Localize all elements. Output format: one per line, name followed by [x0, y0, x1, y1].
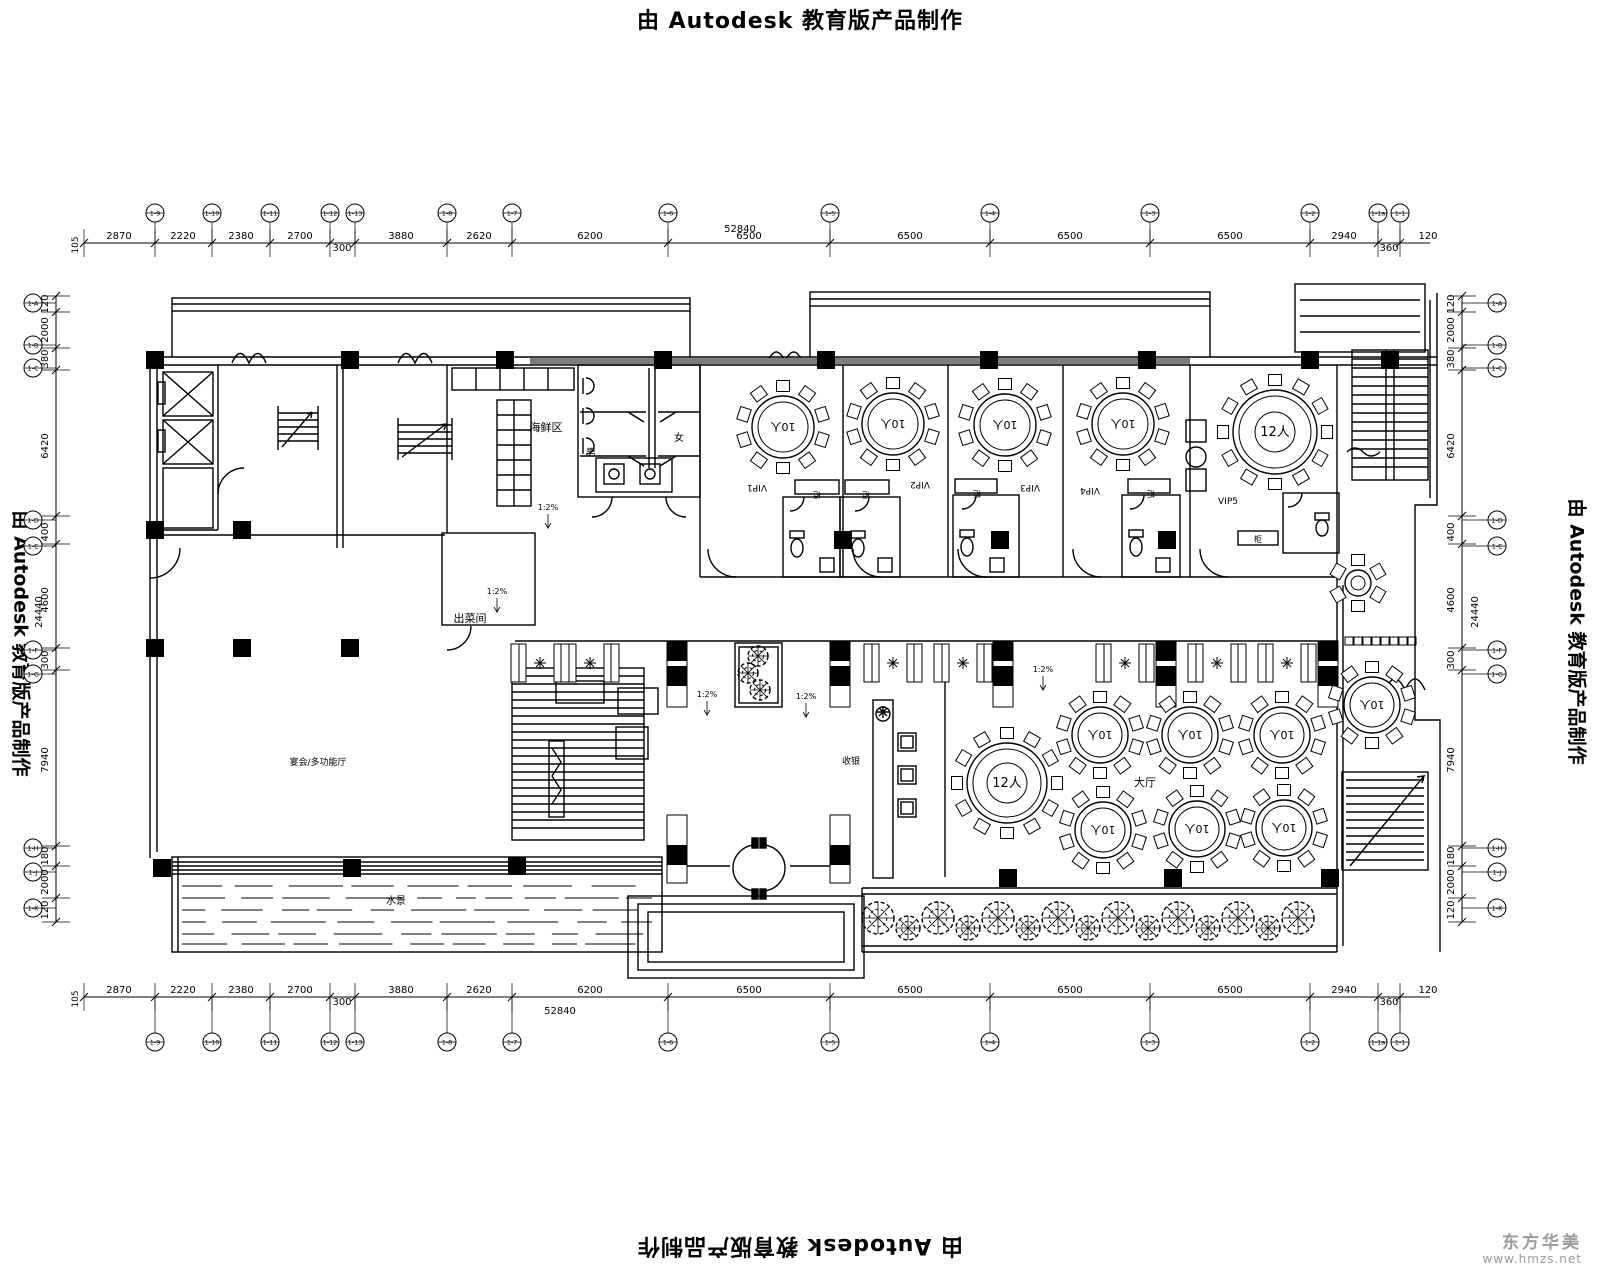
chair — [860, 449, 877, 466]
chair — [799, 452, 816, 469]
grid-bubble-label: 1-B — [28, 342, 39, 350]
chair — [1069, 696, 1086, 713]
chair — [1166, 790, 1183, 807]
chair — [1117, 460, 1130, 471]
tree-icon — [1196, 916, 1220, 940]
chair — [1155, 403, 1169, 419]
grid-bubble-label: 1-F — [28, 647, 38, 655]
chair — [847, 429, 861, 445]
room-label-大厅: 大厅 — [1134, 775, 1156, 789]
chair — [1401, 685, 1415, 701]
room-label-男: 男 — [586, 447, 596, 459]
chair — [1097, 863, 1110, 874]
planter-tree-icon — [738, 663, 758, 683]
table-capacity-label: 10人 — [1088, 728, 1113, 741]
grid-bubble-label: 1-12 — [323, 210, 338, 218]
table-capacity-label: 10人 — [881, 417, 906, 430]
chair — [999, 461, 1012, 472]
dimension-value: 6500 — [736, 985, 761, 996]
grid-bubble-label: 1-6 — [663, 210, 674, 218]
dimension-value: 3880 — [388, 231, 413, 242]
chair — [1077, 429, 1091, 445]
chair — [1269, 479, 1282, 490]
chair — [1293, 379, 1310, 395]
tree-icon — [896, 916, 920, 940]
column — [153, 859, 171, 877]
chair — [1322, 426, 1333, 439]
tree-icon — [1136, 916, 1160, 940]
chair — [1155, 429, 1169, 445]
room-label-VIP1: VIP1 — [747, 482, 767, 492]
dimension-total: 52840 — [544, 1006, 576, 1017]
room-label-VIP3: VIP3 — [1020, 482, 1040, 492]
chair — [1401, 709, 1415, 725]
column — [146, 521, 164, 539]
table-capacity-label: 10人 — [993, 418, 1018, 431]
table-capacity-label: 12人 — [992, 776, 1022, 791]
grid-bubble-label: 1-4 — [985, 210, 996, 218]
chair — [1024, 818, 1041, 834]
chair — [1132, 834, 1146, 850]
chair — [1329, 709, 1343, 725]
tree-icon — [1076, 916, 1100, 940]
chair — [1366, 662, 1379, 673]
dimension-value: 4600 — [1446, 587, 1457, 612]
chair — [1094, 692, 1107, 703]
tree-icon — [922, 902, 954, 934]
site-logo-name: 东方华美 — [1482, 1234, 1582, 1253]
chair — [847, 403, 861, 419]
grid-bubble-label: 1-A — [1492, 300, 1503, 308]
cabinet-square — [1372, 637, 1380, 645]
tree-icon — [1222, 902, 1254, 934]
dimension-value: 6200 — [577, 231, 602, 242]
column — [991, 531, 1009, 549]
chair — [1370, 563, 1386, 580]
ramp-slope-label: 1:2% — [697, 690, 718, 699]
chair — [1129, 739, 1143, 755]
table-capacity-label: 10人 — [1178, 728, 1203, 741]
dimension-value: 7940 — [1446, 747, 1457, 772]
chair — [1311, 739, 1325, 755]
dimension-value: 2000 — [1446, 869, 1457, 894]
table-capacity-label: 10人 — [1111, 417, 1136, 430]
grid-bubble-label: 1-9 — [150, 210, 161, 218]
chair — [1341, 666, 1358, 683]
dimension-value: 105 — [71, 236, 81, 253]
grid-bubble-label: 1-3 — [1145, 1039, 1156, 1047]
tree-icon — [982, 902, 1014, 934]
column — [233, 639, 251, 657]
generated-symbols: 10人10人10人10人12人12人10人10人10人10人10人10人10人1… — [24, 204, 1506, 1051]
grid-bubble-label: 1-4 — [985, 1039, 996, 1047]
tree-icon — [1256, 916, 1280, 940]
room-label-VIP4: VIP4 — [1080, 485, 1100, 495]
dimension-value: 6500 — [897, 231, 922, 242]
chair — [1312, 450, 1328, 467]
column — [1381, 351, 1399, 369]
chair — [1386, 666, 1403, 683]
chair — [1139, 383, 1156, 400]
chair — [1253, 789, 1270, 806]
grid-bubble-label: 1-A — [28, 300, 39, 308]
room-label-VIP2: VIP2 — [910, 479, 930, 489]
dimension-value: 2940 — [1331, 231, 1356, 242]
grid-bubble-label: 1-C — [27, 365, 38, 373]
chair — [860, 383, 877, 400]
chair — [1211, 851, 1228, 868]
chair — [1222, 398, 1238, 415]
chair — [1386, 727, 1403, 744]
grid-bubble-label: 1-B — [1492, 342, 1503, 350]
planter-tree-icon — [748, 646, 768, 666]
chair — [750, 452, 767, 469]
room-label-柜: 柜 — [813, 490, 821, 500]
chair — [1037, 430, 1051, 446]
dimension-value: 2940 — [1331, 985, 1356, 996]
table-capacity-label: 12人 — [1260, 425, 1290, 440]
chair — [909, 383, 926, 400]
ramp-arrow — [704, 701, 710, 715]
grid-bubble-label: 1-13 — [348, 1039, 363, 1047]
chair — [887, 378, 900, 389]
room-label-女: 女 — [674, 431, 684, 444]
chair — [1166, 851, 1183, 868]
dimension-value: 180 — [1446, 846, 1457, 865]
column — [834, 531, 852, 549]
chair — [1241, 469, 1258, 485]
chair — [925, 403, 939, 419]
dimension-value: 360 — [1379, 997, 1398, 1008]
grid-bubble-label: 1-E — [28, 543, 39, 551]
chair — [1077, 403, 1091, 419]
chair — [1211, 790, 1228, 807]
dimension-total: 52840 — [724, 224, 756, 235]
chair — [1293, 469, 1310, 485]
grid-bubble-label: 1-J — [29, 869, 38, 877]
ramp-arrow — [545, 514, 551, 528]
chair — [1129, 715, 1143, 731]
grid-bubble-label: 1-H — [1491, 845, 1502, 853]
grid-bubble-label: 1-6 — [663, 1039, 674, 1047]
chair — [1021, 384, 1038, 401]
dimension-value: 2220 — [170, 231, 195, 242]
dimension-value: 2620 — [466, 985, 491, 996]
grid-bubble-label: 1-12 — [323, 1039, 338, 1047]
dimension-value: 2870 — [106, 985, 131, 996]
column — [980, 351, 998, 369]
chair — [974, 818, 991, 834]
grid-bubble-label: 1-G — [27, 671, 39, 679]
chair — [1218, 426, 1229, 439]
room-label-柜: 柜 — [973, 489, 981, 499]
chair — [737, 432, 751, 448]
table-capacity-label: 10人 — [1185, 822, 1210, 835]
chair — [1276, 692, 1289, 703]
tree-icon — [1042, 902, 1074, 934]
chair — [1024, 732, 1041, 748]
site-logo: 东方华美 www.hmzs.net — [1482, 1234, 1582, 1266]
chair — [1159, 757, 1176, 774]
chair — [1341, 727, 1358, 744]
chair — [1352, 555, 1365, 566]
chair — [737, 406, 751, 422]
chair — [1241, 808, 1255, 824]
grid-bubble-label: 1-10 — [205, 1039, 220, 1047]
chair — [1154, 809, 1168, 825]
dimension-value: 6500 — [1057, 231, 1082, 242]
grid-bubble-label: 1-8 — [442, 210, 453, 218]
room-label-收银: 收银 — [842, 755, 860, 767]
grid-bubble-label: 1-2 — [1305, 1039, 1316, 1047]
chair — [1313, 808, 1327, 824]
dimension-value: 6500 — [897, 985, 922, 996]
dimension-value: 120 — [1418, 231, 1437, 242]
chair — [750, 386, 767, 403]
cad-floorplan-page: 由 Autodesk 教育版产品制作 由 Autodesk 教育版产品制作 由 … — [0, 0, 1600, 1280]
tree-icon — [1102, 902, 1134, 934]
chair — [1072, 791, 1089, 808]
tree-icon — [956, 916, 980, 940]
column — [343, 859, 361, 877]
chair — [1313, 832, 1327, 848]
dimension-value: 120 — [1446, 294, 1457, 313]
table-capacity-label: 10人 — [1272, 821, 1297, 834]
booth-seat — [934, 644, 992, 682]
chair — [1057, 739, 1071, 755]
chair — [1114, 696, 1131, 713]
chair — [956, 800, 972, 817]
dimension-value: 6500 — [1217, 231, 1242, 242]
chair — [999, 379, 1012, 390]
dimension-value: 380 — [1446, 349, 1457, 368]
chair — [1352, 601, 1365, 612]
dimension-value: 2000 — [1446, 317, 1457, 342]
room-label-柜: 柜 — [1254, 534, 1262, 544]
grid-bubble-label: 1-F — [1492, 647, 1502, 655]
chair — [1097, 787, 1110, 798]
grid-bubble-label: 1-10 — [205, 210, 220, 218]
dimension-value: 2700 — [287, 985, 312, 996]
dimension-value: 6200 — [577, 985, 602, 996]
column — [341, 639, 359, 657]
grid-bubble-label: 1-D — [1491, 517, 1503, 525]
chair — [1191, 862, 1204, 873]
chair — [952, 777, 963, 790]
tree-icon — [1016, 916, 1040, 940]
grid-bubble-label: 1-K — [1492, 905, 1503, 913]
chair — [1278, 785, 1291, 796]
chair — [925, 429, 939, 445]
chair — [1132, 810, 1146, 826]
chair — [1226, 809, 1240, 825]
column — [508, 857, 526, 875]
ramp-arrow — [494, 598, 500, 612]
grid-bubble-label: 1-3 — [1145, 210, 1156, 218]
chair — [1147, 739, 1161, 755]
grid-bubble-label: 1-1 — [1395, 210, 1406, 218]
chair — [1139, 449, 1156, 466]
chair — [1090, 449, 1107, 466]
chair — [1060, 810, 1074, 826]
chair — [1072, 852, 1089, 869]
grid-bubble-label: 1-1 — [1395, 1039, 1406, 1047]
chair — [1060, 834, 1074, 850]
chair — [1251, 757, 1268, 774]
chair — [1052, 777, 1063, 790]
booth-seat — [1188, 644, 1246, 682]
booth-seat — [1096, 644, 1154, 682]
dimension-value: 300 — [1446, 650, 1457, 669]
room-label-宴会/多功能厅: 宴会/多功能厅 — [289, 756, 346, 768]
chair — [956, 750, 972, 767]
chair — [777, 463, 790, 474]
tree-icon — [1162, 902, 1194, 934]
cabinet-square — [1354, 637, 1362, 645]
chair — [1001, 728, 1014, 739]
tree-icon — [862, 902, 894, 934]
chair — [1117, 791, 1134, 808]
chair — [1253, 850, 1270, 867]
dimension-value: 300 — [332, 243, 351, 254]
chair — [1184, 768, 1197, 779]
grid-bubble-label: 1-E — [1492, 543, 1503, 551]
column — [1138, 351, 1156, 369]
chair — [1298, 789, 1315, 806]
chair — [1184, 692, 1197, 703]
ramp-slope-label: 1:2% — [487, 587, 508, 596]
chair — [815, 432, 829, 448]
chair — [1312, 398, 1328, 415]
column — [817, 351, 835, 369]
chair — [1296, 696, 1313, 713]
chair — [1241, 379, 1258, 395]
dimension-value: 120 — [1446, 900, 1457, 919]
dimension-value: 2380 — [228, 231, 253, 242]
chair — [1147, 715, 1161, 731]
grid-bubble-label: 1-11 — [263, 210, 278, 218]
dimension-value: 120 — [1418, 985, 1437, 996]
chair — [1219, 739, 1233, 755]
chair — [1090, 383, 1107, 400]
chair — [1117, 852, 1134, 869]
ramp-slope-label: 1:2% — [796, 692, 817, 701]
room-label-柜: 柜 — [1147, 489, 1155, 499]
tree-icon — [1282, 902, 1314, 934]
room-label-VIP5: VIP5 — [1218, 497, 1238, 507]
chair — [959, 430, 973, 446]
grid-bubble-label: 1-11 — [263, 1039, 278, 1047]
dimension-value: 7940 — [40, 747, 51, 772]
grid-bubble-label: 1-2 — [1305, 210, 1316, 218]
table-capacity-label: 10人 — [1270, 728, 1295, 741]
dimension-value: 6420 — [40, 433, 51, 458]
column — [146, 351, 164, 369]
ramp-slope-label: 1:2% — [1033, 665, 1054, 674]
dimension-value: 6500 — [1057, 985, 1082, 996]
chair — [887, 460, 900, 471]
toilet-icons — [790, 513, 1329, 572]
dimension-value: 400 — [40, 522, 51, 541]
chair — [1370, 586, 1386, 603]
column — [496, 351, 514, 369]
dimension-value: 105 — [71, 990, 81, 1007]
grid-bubble-label: 1-13 — [348, 210, 363, 218]
chair — [959, 404, 973, 420]
chair — [1069, 757, 1086, 774]
dimension-value: 400 — [1446, 522, 1457, 541]
chair — [1239, 739, 1253, 755]
ramp-arrow — [803, 703, 809, 717]
column — [146, 639, 164, 657]
grid-bubble-label: 1-D — [27, 517, 39, 525]
chair — [909, 449, 926, 466]
chair — [1154, 833, 1168, 849]
site-logo-url: www.hmzs.net — [1482, 1253, 1582, 1266]
chair — [1021, 450, 1038, 467]
chair — [1191, 786, 1204, 797]
grid-bubble-label: 1-8 — [442, 1039, 453, 1047]
room-label-海鲜区: 海鲜区 — [530, 420, 563, 434]
cabinet-square — [1390, 637, 1398, 645]
chair — [972, 384, 989, 401]
dimension-value: 6500 — [1217, 985, 1242, 996]
grid-bubble-label: 1-K — [28, 905, 39, 913]
chair — [1276, 768, 1289, 779]
dimension-total: 24440 — [1470, 596, 1481, 628]
column — [999, 869, 1017, 887]
dimension-value: 2620 — [466, 231, 491, 242]
booth-seat — [864, 644, 922, 682]
dining-table-small — [1330, 555, 1386, 612]
chair — [1278, 861, 1291, 872]
dimension-value: 6420 — [1446, 433, 1457, 458]
chair — [1298, 850, 1315, 867]
chair — [1296, 757, 1313, 774]
cabinet-square — [1345, 637, 1353, 645]
dimension-value: 2700 — [287, 231, 312, 242]
chair — [1037, 404, 1051, 420]
chair — [777, 381, 790, 392]
planter-tree-icon — [750, 680, 770, 700]
grid-bubble-label: 1-J — [1493, 869, 1502, 877]
chair — [1094, 768, 1107, 779]
chair — [1269, 375, 1282, 386]
table-capacity-label: 10人 — [1091, 823, 1116, 836]
cabinet-square — [1381, 637, 1389, 645]
chair — [815, 406, 829, 422]
chair — [1204, 757, 1221, 774]
chair — [1001, 828, 1014, 839]
ramp-slope-label: 1:2% — [538, 503, 559, 512]
grid-bubble-label: 1-7 — [507, 1039, 518, 1047]
chair — [1251, 696, 1268, 713]
grid-bubble-label: 1-1a — [1371, 1039, 1386, 1047]
dimension-value: 360 — [1379, 243, 1398, 254]
chair — [1366, 738, 1379, 749]
dimension-value: 3880 — [388, 985, 413, 996]
chair — [1226, 833, 1240, 849]
chair — [974, 732, 991, 748]
grid-bubble-label: 1-1a — [1371, 210, 1386, 218]
chair — [1042, 800, 1058, 817]
chair — [1239, 715, 1253, 731]
dimension-value: 2870 — [106, 231, 131, 242]
chair — [1042, 750, 1058, 767]
dimension-value: 2380 — [228, 985, 253, 996]
column — [654, 351, 672, 369]
chair — [1057, 715, 1071, 731]
